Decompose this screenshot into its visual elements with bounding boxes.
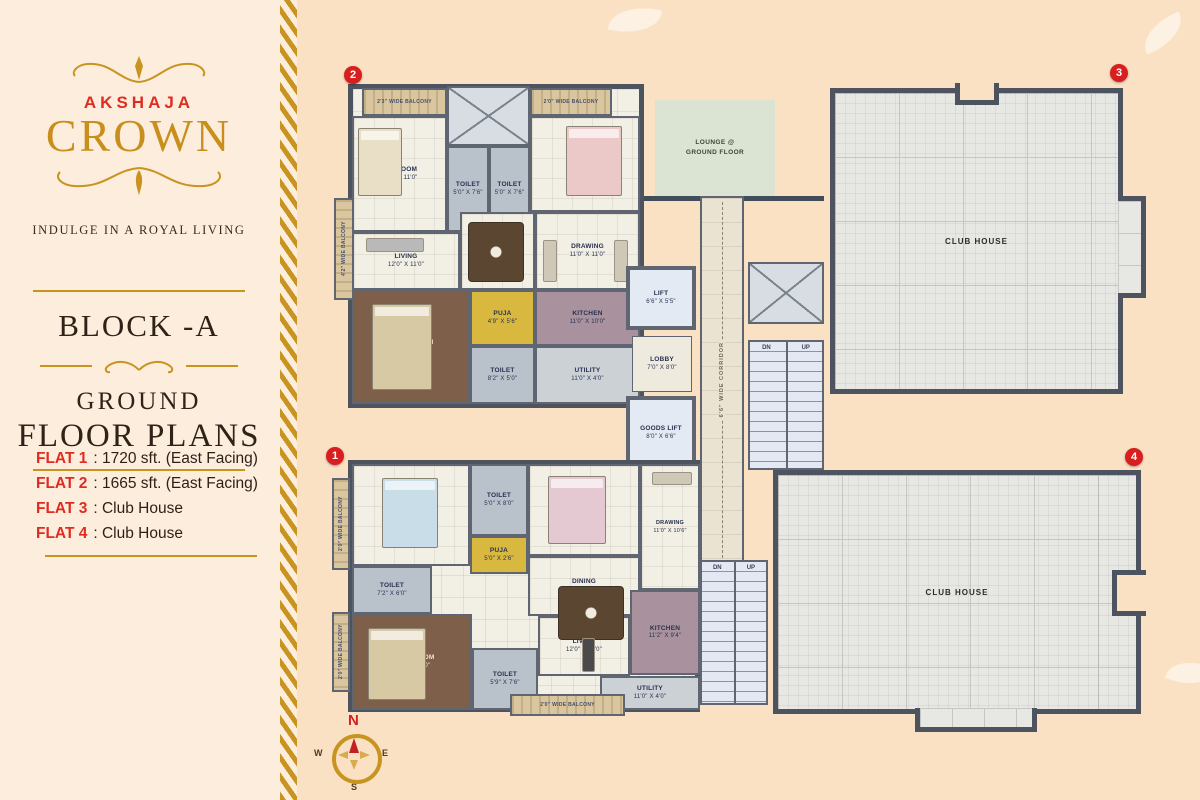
flat-label: FLAT 1: [36, 450, 87, 468]
room-label: DRAWING: [656, 520, 684, 527]
room-dims: 11'0" X 4'0": [634, 694, 667, 701]
bed: [358, 128, 402, 196]
flourish-ornament-top: [59, 52, 219, 86]
room-dims: 8'2" X 5'0": [488, 376, 517, 383]
rope-border: [278, 0, 297, 800]
room-dims: 11'0" X 4'0": [571, 376, 604, 383]
flat2-badge: 2: [344, 66, 362, 84]
room-label: DRAWING: [571, 243, 604, 251]
room-dims: 5'0" X 7'6": [495, 190, 524, 197]
compass-north-label: N: [348, 712, 359, 729]
clubhouse4: CLUB HOUSE: [773, 470, 1141, 714]
room-dims: 11'0" X 10'0": [569, 319, 605, 326]
staircase-lower: DN UP: [700, 560, 768, 705]
room-dims: 11'0" X 11'0": [570, 252, 606, 259]
clubhouse3-bump: [1118, 196, 1146, 298]
stairs-up-label: UP: [745, 565, 757, 571]
flat2-puja: PUJA 4'9" X 5'6": [470, 290, 535, 346]
lounge-label-line2: GROUND FLOOR: [686, 148, 744, 158]
clubhouse4-notch: [1112, 570, 1146, 616]
gold-divider: [45, 555, 257, 557]
sofa: [582, 638, 595, 672]
gold-divider: [186, 365, 238, 367]
room-label: LIFT: [654, 290, 669, 298]
flat-label: FLAT 3: [36, 500, 87, 518]
room-dims: 5'9" X 7'6": [490, 680, 519, 687]
flat-value: : Club House: [93, 500, 183, 518]
lounge-label-line1: LOUNGE @: [695, 138, 734, 148]
room-label: GOODS LIFT: [640, 425, 682, 433]
flat-legend: FLAT 1 : 1720 sft. (East Facing) FLAT 2 …: [36, 443, 266, 557]
room-label: TOILET: [497, 181, 521, 189]
flat1-puja: PUJA 5'0" X 2'6": [470, 536, 528, 574]
dining-table: [558, 586, 624, 640]
flat-label: FLAT 2: [36, 475, 87, 493]
flat-value: : 1720 sft. (East Facing): [93, 450, 258, 468]
room-dims: 5'0" X 8'0": [484, 501, 513, 508]
gold-divider: [33, 290, 245, 292]
lobby: LOBBY 7'0" X 8'0": [632, 336, 692, 392]
lounge-area: LOUNGE @ GROUND FLOOR: [655, 100, 775, 200]
goods-lift: GOODS LIFT 8'0" X 6'6": [626, 396, 696, 470]
room-label: TOILET: [456, 181, 480, 189]
compass-rose: N W E S: [308, 712, 400, 798]
bed: [548, 476, 606, 544]
room-label: LOBBY: [650, 356, 674, 364]
room-dims: 8'0" X 6'6": [646, 434, 675, 441]
clubhouse3-label: CLUB HOUSE: [945, 237, 1008, 246]
staircase-upper: DN UP: [748, 340, 824, 470]
room-dims: 6'6" X 5'5": [646, 299, 675, 306]
clubhouse3-badge: 3: [1110, 64, 1128, 82]
clubhouse3: CLUB HOUSE: [830, 88, 1123, 394]
bed: [566, 126, 622, 196]
clubhouse4-badge: 4: [1125, 448, 1143, 466]
room-label: PUJA: [490, 547, 508, 555]
compass-east-label: E: [382, 748, 388, 758]
flat1-toilet2: TOILET 7'2" X 6'0": [352, 566, 432, 614]
flat2-balcony-top-right: 2'0" WIDE BALCONY: [530, 88, 612, 116]
brand-logo: AKSHAJA CROWN INDULGE IN A ROYAL LIVING: [0, 52, 278, 238]
room-label: TOILET: [493, 671, 517, 679]
flat2-utility: UTILITY 11'0" X 4'0": [535, 346, 640, 404]
flat2-toilet3: TOILET 8'2" X 5'0": [470, 346, 535, 404]
sidebar: AKSHAJA CROWN INDULGE IN A ROYAL LIVING …: [0, 0, 278, 800]
petal-decoration: [608, 2, 662, 38]
compass-east-arrow: [360, 751, 370, 759]
scroll-ornament-icon: [96, 356, 182, 376]
room-label: LIVING: [395, 253, 418, 261]
room-label: DINING: [572, 578, 596, 586]
room-label: TOILET: [487, 492, 511, 500]
room-label: TOILET: [490, 367, 514, 375]
dining-table: [468, 222, 524, 282]
stair-divider: [734, 562, 736, 703]
compass-west-label: W: [314, 748, 323, 758]
room-label: UTILITY: [575, 367, 601, 375]
room-dims: 11'2" X 9'4": [649, 633, 682, 640]
logo-title: CROWN: [0, 109, 278, 162]
corridor-label: 6'6" WIDE CORRIDOR: [719, 339, 725, 420]
flat2-balcony-top-left: 2'3" WIDE BALCONY: [362, 88, 447, 116]
corridor: 6'6" WIDE CORRIDOR: [700, 196, 744, 564]
flat2-kitchen: KITCHEN 11'0" X 10'0": [535, 290, 640, 346]
flat1-kitchen: KITCHEN 11'2" X 9'4": [630, 590, 700, 675]
clubhouse4-bump: [915, 708, 1037, 732]
petal-decoration: [1165, 653, 1200, 692]
flat-label: FLAT 4: [36, 525, 87, 543]
room-dims: 4'9" X 5'6": [488, 319, 517, 326]
stairs-dn-label: DN: [760, 345, 773, 351]
flat2-shaft: [447, 86, 530, 146]
flat1-balcony-left-bottom: 2'0" WIDE BALCONY: [332, 612, 350, 692]
flat-legend-row-4: FLAT 4 : Club House: [36, 525, 266, 543]
stairs-dn-label: DN: [711, 565, 724, 571]
flat1-badge: 1: [326, 447, 344, 465]
clubhouse4-label: CLUB HOUSE: [926, 588, 989, 597]
stair-divider: [786, 342, 788, 468]
stair-landing-hatch: [748, 262, 824, 324]
flat-legend-row-1: FLAT 1 : 1720 sft. (East Facing): [36, 450, 266, 468]
lift: LIFT 6'6" X 5'5": [626, 266, 696, 330]
sofa: [543, 240, 557, 282]
compass-north-arrow: [349, 738, 359, 753]
floor-plan-page: AKSHAJA CROWN INDULGE IN A ROYAL LIVING …: [0, 0, 1200, 800]
gold-divider: [40, 365, 92, 367]
petal-decoration: [1137, 11, 1190, 54]
flat2-balcony-left: 4'2" WIDE BALCONY: [334, 198, 354, 300]
bed: [382, 478, 438, 548]
flat1-balcony-left-top: 2'0" WIDE BALCONY: [332, 478, 350, 570]
compass-west-arrow: [338, 751, 348, 759]
flat-legend-row-2: FLAT 2 : 1665 sft. (East Facing): [36, 475, 266, 493]
room-label: KITCHEN: [572, 310, 602, 318]
sofa: [652, 472, 692, 485]
room-label: PUJA: [493, 310, 511, 318]
room-label: KITCHEN: [650, 625, 680, 633]
clubhouse3-notch: [955, 83, 999, 105]
bed: [368, 628, 426, 700]
room-dims: 12'0" X 11'0": [388, 262, 424, 269]
compass-south-arrow: [350, 760, 358, 770]
room-label: TOILET: [380, 582, 404, 590]
bed: [372, 304, 432, 390]
flat1-toilet1: TOILET 5'0" X 8'0": [470, 464, 528, 536]
flat-legend-row-3: FLAT 3 : Club House: [36, 500, 266, 518]
plans-title-line1: GROUND: [0, 388, 278, 416]
room-label: UTILITY: [637, 685, 663, 693]
flat-value: : 1665 sft. (East Facing): [93, 475, 258, 493]
flat1-balcony-bottom: 2'0" WIDE BALCONY: [510, 694, 625, 716]
block-title: BLOCK -A: [0, 308, 278, 344]
brand-tagline: INDULGE IN A ROYAL LIVING: [0, 223, 278, 238]
ornament-divider: [0, 356, 278, 376]
sofa: [366, 238, 424, 252]
flourish-ornament-bottom: [44, 162, 234, 202]
stairs-up-label: UP: [800, 345, 812, 351]
room-dims: 7'0" X 8'0": [647, 365, 676, 372]
room-dims: 5'0" X 2'6": [484, 556, 513, 563]
room-dims: 11'0" X 10'6": [653, 528, 686, 535]
room-dims: 7'2" X 6'0": [377, 591, 406, 598]
flat-value: : Club House: [93, 525, 183, 543]
room-dims: 5'0" X 7'6": [453, 190, 482, 197]
